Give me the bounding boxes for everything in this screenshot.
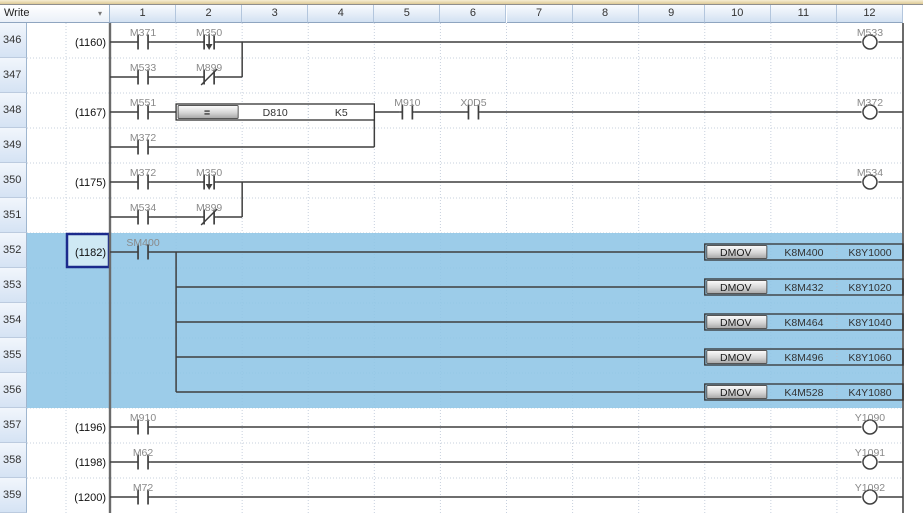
contact-X0D5[interactable]: X0D5 [460, 97, 486, 121]
operand-K5: K5 [335, 107, 348, 119]
grid-header: Write ▾ 123456789101112 [0, 5, 923, 23]
svg-text:M72: M72 [133, 482, 154, 494]
step-number-358: (1198) [75, 457, 106, 469]
instruction-block-DMOV[interactable]: DMOVK8M432K8Y1020 [705, 279, 903, 295]
plc-ladder-editor: Write ▾ 123456789101112 3463473483493503… [0, 0, 923, 513]
column-header-6: 6 [440, 5, 506, 23]
column-header-12: 12 [837, 5, 903, 23]
coil-M372[interactable]: M372 [857, 97, 883, 121]
svg-text:SM400: SM400 [126, 237, 159, 249]
svg-text:M899: M899 [196, 62, 222, 74]
svg-text:=: = [204, 107, 210, 119]
svg-text:M910: M910 [130, 412, 156, 424]
svg-text:M534: M534 [857, 167, 883, 179]
svg-text:M372: M372 [130, 167, 156, 179]
column-header-10: 10 [705, 5, 771, 23]
mode-label: Write [4, 7, 29, 19]
operand-K4M528: K4M528 [784, 387, 823, 399]
instruction-block-=[interactable]: =D810K5 [176, 104, 374, 120]
contact-M350[interactable]: M350 [196, 167, 222, 191]
step-number-350: (1175) [75, 177, 106, 189]
svg-text:Y1090: Y1090 [855, 412, 886, 424]
svg-text:M899: M899 [196, 202, 222, 214]
svg-text:M371: M371 [130, 27, 156, 39]
chevron-down-icon: ▾ [98, 6, 102, 22]
svg-text:DMOV: DMOV [720, 317, 752, 329]
contact-M371[interactable]: M371 [130, 27, 156, 51]
svg-text:Y1092: Y1092 [855, 482, 886, 494]
svg-text:DMOV: DMOV [720, 387, 752, 399]
operand-D810: D810 [263, 107, 288, 119]
svg-text:Y1091: Y1091 [855, 447, 886, 459]
ladder-canvas[interactable]: (1160)(1167)(1175)(1182)(1196)(1198)(120… [0, 23, 923, 513]
column-header-2: 2 [176, 5, 242, 23]
operand-K8Y1060: K8Y1060 [848, 352, 891, 364]
coil-M534[interactable]: M534 [857, 167, 883, 191]
contact-M533[interactable]: M533 [130, 62, 156, 86]
instruction-block-DMOV[interactable]: DMOVK8M400K8Y1000 [705, 244, 903, 260]
contact-M372[interactable]: M372 [130, 167, 156, 191]
svg-text:M350: M350 [196, 167, 222, 179]
column-header-1: 1 [110, 5, 176, 23]
contact-M551[interactable]: M551 [130, 97, 156, 121]
operand-K8Y1020: K8Y1020 [848, 282, 891, 294]
contact-M899[interactable]: M899 [196, 62, 222, 86]
operand-K8M432: K8M432 [784, 282, 823, 294]
contact-M350[interactable]: M350 [196, 27, 222, 51]
svg-text:DMOV: DMOV [720, 282, 752, 294]
step-number-348: (1167) [75, 107, 106, 119]
svg-text:M372: M372 [857, 97, 883, 109]
svg-text:M62: M62 [133, 447, 154, 459]
column-header-7: 7 [507, 5, 573, 23]
column-header-5: 5 [374, 5, 440, 23]
coil-Y1090[interactable]: Y1090 [855, 412, 886, 436]
step-number-359: (1200) [74, 492, 106, 504]
operand-K8M400: K8M400 [784, 247, 823, 259]
step-number-357: (1196) [75, 422, 106, 434]
operand-K8Y1000: K8Y1000 [848, 247, 891, 259]
contact-M899[interactable]: M899 [196, 202, 222, 226]
step-number-352: (1182) [75, 247, 106, 259]
instruction-block-DMOV[interactable]: DMOVK4M528K4Y1080 [705, 384, 903, 400]
svg-text:X0D5: X0D5 [460, 97, 486, 109]
contact-M72[interactable]: M72 [133, 482, 154, 506]
column-header-11: 11 [771, 5, 837, 23]
instruction-block-DMOV[interactable]: DMOVK8M464K8Y1040 [705, 314, 903, 330]
contact-M62[interactable]: M62 [133, 447, 154, 471]
coil-Y1091[interactable]: Y1091 [855, 447, 886, 471]
operand-K8M496: K8M496 [784, 352, 823, 364]
mode-selector[interactable]: Write ▾ [0, 5, 110, 23]
svg-text:M534: M534 [130, 202, 156, 214]
svg-text:M910: M910 [394, 97, 420, 109]
column-header-9: 9 [639, 5, 705, 23]
svg-text:M533: M533 [857, 27, 883, 39]
column-header-8: 8 [573, 5, 639, 23]
column-header-4: 4 [308, 5, 374, 23]
step-number-346: (1160) [75, 37, 106, 49]
svg-text:M533: M533 [130, 62, 156, 74]
operand-K8M464: K8M464 [784, 317, 823, 329]
contact-M910[interactable]: M910 [130, 412, 156, 436]
coil-M533[interactable]: M533 [857, 27, 883, 51]
selection-highlight [27, 233, 903, 408]
contact-M534[interactable]: M534 [130, 202, 156, 226]
svg-text:M350: M350 [196, 27, 222, 39]
operand-K8Y1040: K8Y1040 [848, 317, 891, 329]
column-header-3: 3 [242, 5, 308, 23]
svg-text:DMOV: DMOV [720, 247, 752, 259]
svg-text:M372: M372 [130, 132, 156, 144]
svg-text:DMOV: DMOV [720, 352, 752, 364]
coil-Y1092[interactable]: Y1092 [855, 482, 886, 506]
operand-K4Y1080: K4Y1080 [848, 387, 891, 399]
svg-text:M551: M551 [130, 97, 156, 109]
instruction-block-DMOV[interactable]: DMOVK8M496K8Y1060 [705, 349, 903, 365]
contact-M910[interactable]: M910 [394, 97, 420, 121]
contact-M372[interactable]: M372 [130, 132, 156, 156]
